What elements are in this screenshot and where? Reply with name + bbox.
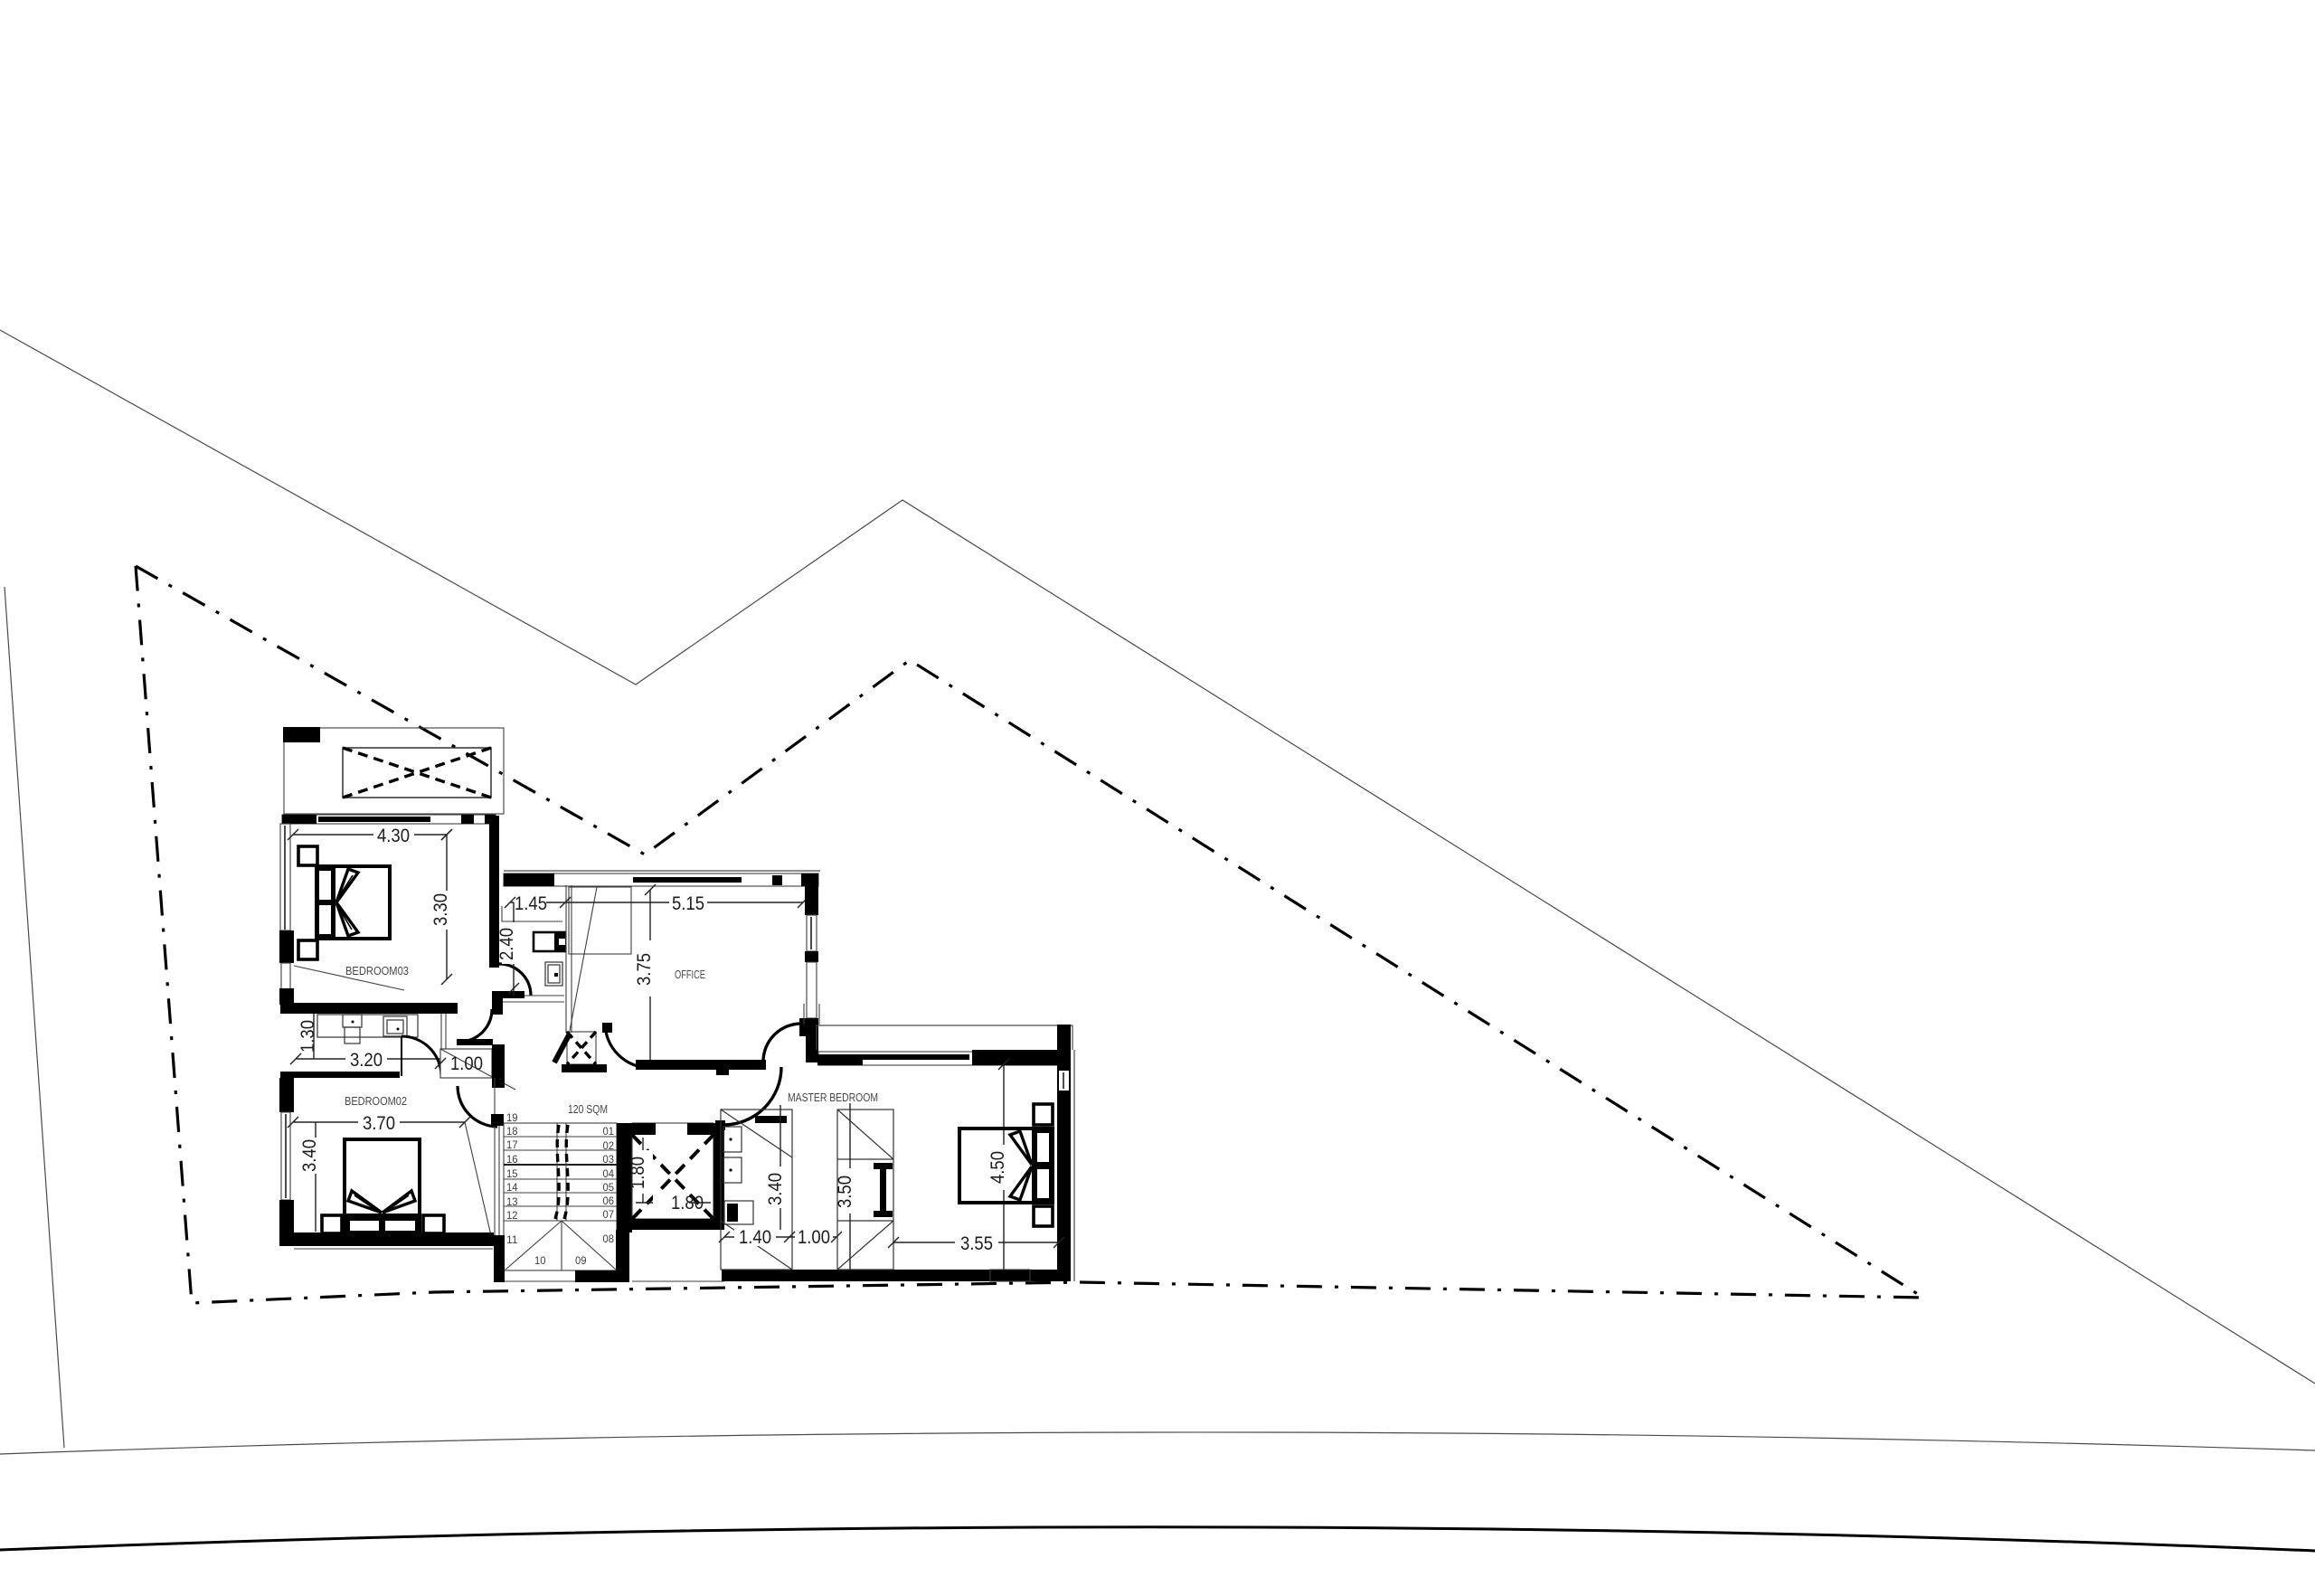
svg-text:3.30: 3.30	[430, 893, 451, 926]
svg-text:18: 18	[506, 1127, 518, 1138]
svg-text:3.40: 3.40	[765, 1173, 786, 1205]
svg-text:05: 05	[603, 1183, 615, 1194]
svg-text:BEDROOM02: BEDROOM02	[345, 1094, 407, 1108]
svg-text:3.75: 3.75	[634, 953, 655, 986]
svg-text:16: 16	[506, 1155, 518, 1166]
svg-text:11: 11	[506, 1235, 518, 1246]
svg-text:OFFICE: OFFICE	[675, 968, 705, 981]
svg-text:MASTER BEDROOM: MASTER BEDROOM	[788, 1091, 878, 1104]
svg-text:04: 04	[603, 1169, 615, 1180]
svg-text:08: 08	[603, 1234, 615, 1245]
svg-text:15: 15	[506, 1169, 518, 1180]
svg-text:1.80: 1.80	[671, 1193, 704, 1214]
svg-text:17: 17	[506, 1140, 518, 1151]
svg-text:BEDROOM03: BEDROOM03	[345, 964, 409, 977]
svg-text:07: 07	[603, 1210, 615, 1221]
svg-text:14: 14	[506, 1183, 518, 1194]
svg-text:10: 10	[534, 1256, 546, 1267]
svg-text:3.55: 3.55	[960, 1233, 993, 1254]
svg-text:3.70: 3.70	[363, 1113, 395, 1134]
svg-text:2.40: 2.40	[496, 928, 517, 960]
svg-text:12: 12	[506, 1211, 518, 1222]
svg-text:3.50: 3.50	[835, 1176, 855, 1208]
svg-text:1.40: 1.40	[739, 1227, 771, 1248]
svg-text:3.40: 3.40	[299, 1139, 320, 1172]
svg-text:09: 09	[575, 1256, 587, 1267]
svg-text:1.45: 1.45	[515, 893, 547, 914]
svg-text:5.15: 5.15	[672, 893, 704, 914]
svg-text:03: 03	[603, 1155, 615, 1166]
svg-text:1.80: 1.80	[628, 1157, 648, 1189]
svg-text:1.00: 1.00	[450, 1053, 483, 1074]
svg-text:4.50: 4.50	[987, 1151, 1008, 1184]
svg-text:120 SQM: 120 SQM	[568, 1102, 608, 1116]
svg-text:1.30: 1.30	[298, 1020, 318, 1053]
svg-text:3.20: 3.20	[350, 1050, 383, 1071]
svg-text:02: 02	[603, 1141, 615, 1152]
svg-text:4.30: 4.30	[377, 826, 410, 846]
svg-text:01: 01	[603, 1127, 615, 1138]
svg-text:1.00: 1.00	[798, 1227, 830, 1248]
svg-text:19: 19	[506, 1113, 518, 1124]
svg-text:13: 13	[506, 1197, 518, 1208]
svg-text:06: 06	[603, 1196, 615, 1207]
